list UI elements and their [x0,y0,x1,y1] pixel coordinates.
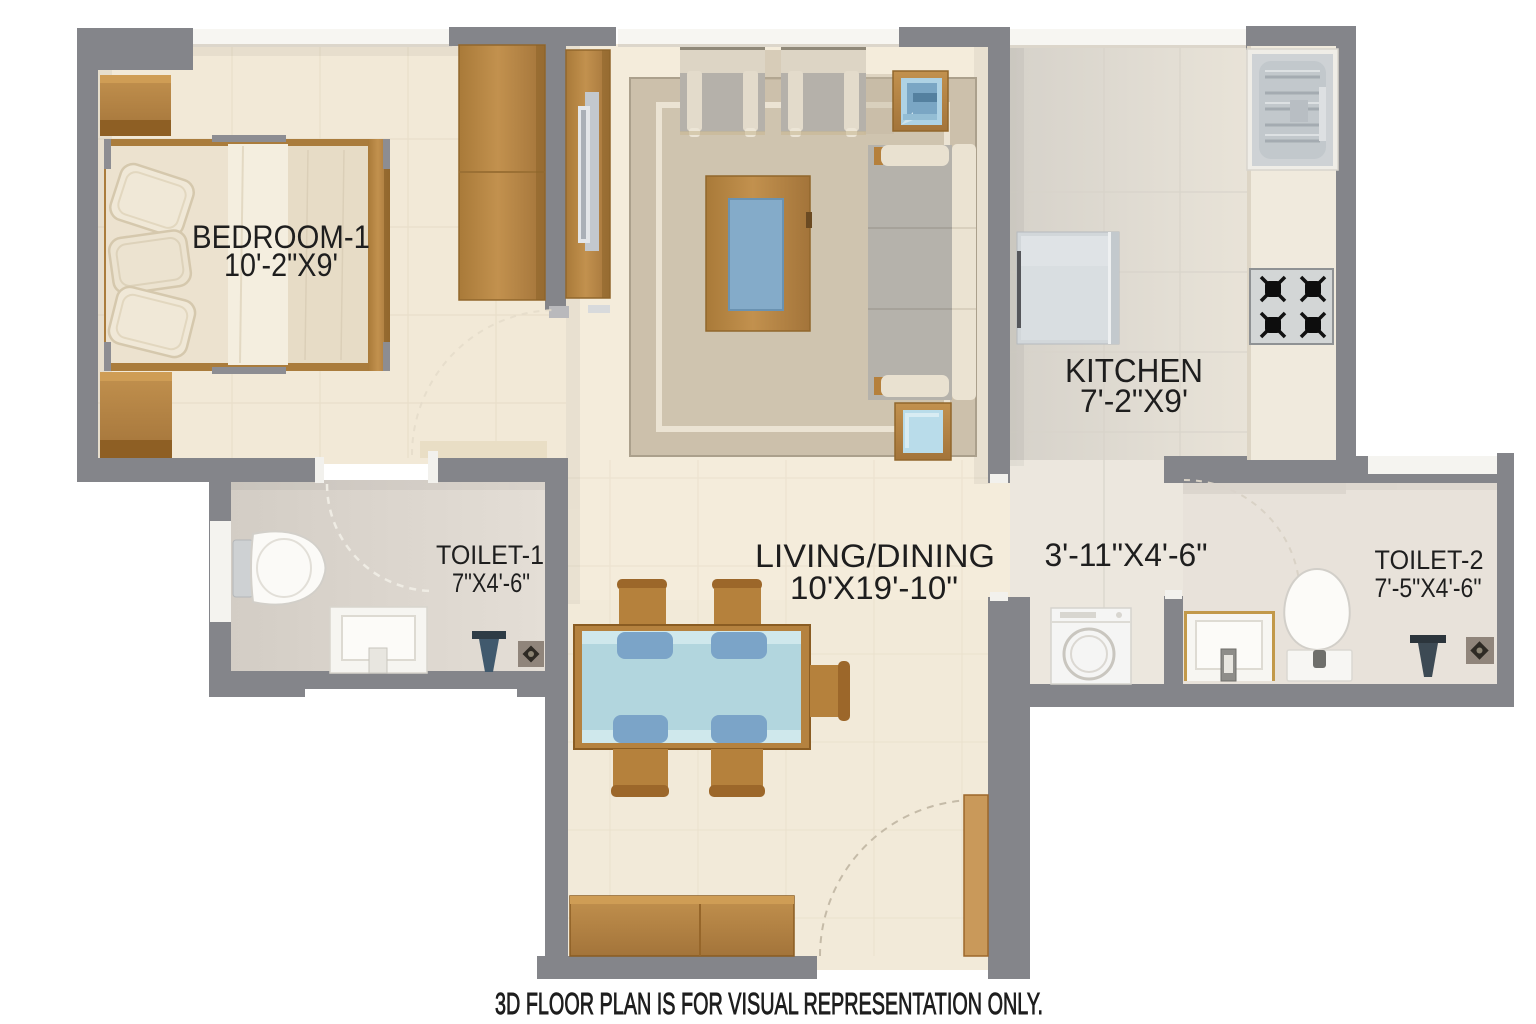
svg-text:7'-5"X4'-6": 7'-5"X4'-6" [1375,573,1482,603]
svg-text:7'-2"X9': 7'-2"X9' [1080,383,1188,419]
svg-text:3'-11"X4'-6": 3'-11"X4'-6" [1045,537,1208,573]
svg-text:10'-2"X9': 10'-2"X9' [224,247,338,283]
svg-text:TOILET-1: TOILET-1 [436,540,544,570]
svg-text:TOILET-2: TOILET-2 [1375,545,1484,575]
svg-text:7"X4'-6": 7"X4'-6" [452,568,530,598]
svg-text:LIVING/DINING: LIVING/DINING [755,538,995,574]
svg-text:10'X19'-10": 10'X19'-10" [790,570,958,606]
svg-text:3D FLOOR PLAN IS FOR VISUAL RE: 3D FLOOR PLAN IS FOR VISUAL REPRESENTATI… [495,986,1043,1021]
